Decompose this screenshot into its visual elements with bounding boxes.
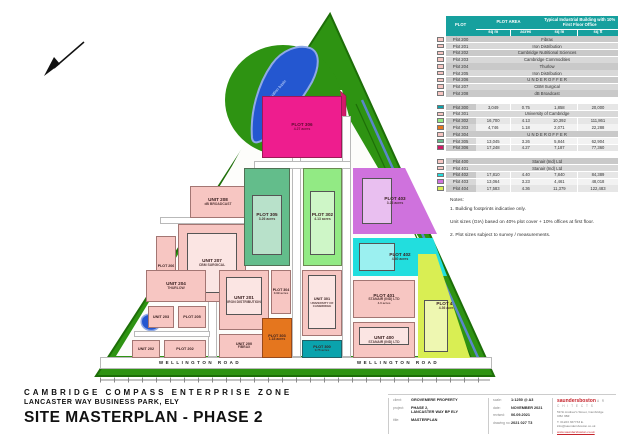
plot-sublabel: UNIVERSITY OF CAMBRIDGE [303, 302, 341, 309]
table-value-cell: 11,379 [541, 185, 577, 191]
swatch-color [437, 112, 444, 117]
table-merged-cell: Iron Distribution [476, 43, 618, 49]
table-plot-cell: Plot 205 [446, 70, 476, 76]
table-swatch [436, 50, 445, 56]
table-group-gap [436, 151, 618, 157]
plot-sublabel: 0.75 acres [315, 349, 330, 352]
table-value-cell: 4.36 [511, 185, 541, 191]
table-plot-cell: Plot 402 [446, 172, 476, 178]
table-plot-cell: Plot 203 [446, 57, 476, 63]
table-unit-sqm2: sq m [541, 30, 577, 36]
swatch-color [437, 186, 444, 191]
architect-website: www.saundersboston.co.uk [557, 430, 610, 434]
table-swatch [436, 36, 445, 42]
note-2: Unit sizes (GIA) based on 40% plot cover… [450, 218, 612, 227]
table-swatch [436, 118, 445, 124]
table-plot-cell: Plot 303 [446, 124, 476, 130]
building-footprint [252, 195, 282, 255]
plot-label: PLOT 206 [158, 264, 175, 268]
estate-road-5 [160, 217, 248, 224]
estate-road-6 [134, 331, 210, 337]
date-label: date: [493, 406, 511, 411]
notes-block: Notes: 1. Building footprints indicative… [450, 196, 612, 240]
table-plot-cell: Plot 202 [446, 50, 476, 56]
table-value-cell: 13,045 [476, 138, 510, 144]
table-swatch [436, 70, 445, 76]
table-value-cell: 17,810 [476, 172, 510, 178]
table-value-cell: 17,583 [476, 185, 510, 191]
table-value-cell: 17,248 [476, 145, 510, 151]
plot-sublabel: 1.18 acres [269, 338, 285, 342]
table-swatch-gutter [436, 16, 445, 36]
table-plot-cell: Plot 301 [446, 111, 476, 117]
table-value-cell: 2,071 [541, 124, 577, 130]
table-swatch [436, 138, 445, 144]
table-value-cell: 0.75 [511, 104, 541, 110]
wellington-road-label-west: WELLINGTON ROAD [150, 360, 250, 365]
business-park-subtitle: LANCASTER WAY BUSINESS PARK, ELY [24, 399, 292, 406]
table-value-cell: 4,461 [541, 179, 577, 185]
table-value-cell: 5,844 [541, 138, 577, 144]
plot-sublabel: 0.99 acres [274, 292, 289, 295]
plot-300: PLOT 300 0.75 acres [302, 340, 342, 358]
table-value-cell: 77,360 [578, 145, 618, 151]
table-swatch [436, 158, 445, 164]
swatch-color [437, 84, 444, 89]
note-1: 1. Building footprints indicative only. [450, 205, 612, 214]
architect-address: 59 St Andrew's Street, Cambridge CB2 3BZ [557, 410, 610, 419]
plot-schedule-table: PLOT PLOT AREA Typical Industrial Buildi… [436, 16, 618, 192]
table-value-cell: 4.13 [511, 118, 541, 124]
swatch-color [437, 118, 444, 123]
table-plot-cell: Plot 302 [446, 118, 476, 124]
date-value: NOVEMBER 2021 [511, 406, 542, 411]
swatch-color [437, 51, 444, 56]
table-value-cell: 122,483 [578, 185, 618, 191]
table-merged-cell: Iron Distribution [476, 70, 618, 76]
north-arrow-icon [44, 42, 84, 76]
plot-unit-203: UNIT 203 [148, 306, 174, 328]
table-plot-cell: Plot 204 [446, 63, 476, 69]
table-header-building: Typical Industrial Building with 10% Fir… [541, 16, 618, 29]
table-merged-cell: Cambridge Commodities [476, 57, 618, 63]
table-swatch [436, 57, 445, 63]
table-group-gap [436, 97, 618, 103]
plot-unit-202: UNIT 202 [132, 340, 160, 358]
swatch-color [437, 37, 444, 42]
table-header-area: PLOT AREA [476, 16, 541, 29]
table-plot-cell: Plot 206 [446, 77, 476, 83]
table-plot-cell: Plot 401 [446, 165, 476, 171]
client-value: GROVEMERE PROPERTY [411, 398, 458, 403]
plot-sublabel: THURLOW [167, 287, 184, 291]
table-value-cell: 3.26 [511, 138, 541, 144]
table-swatch [436, 165, 445, 171]
table-merged-cell: University of Cambridge [476, 111, 618, 117]
table-value-cell: 84,389 [578, 172, 618, 178]
plot-sublabel: 4.36 acres [439, 307, 455, 311]
enterprise-zone-title: CAMBRIDGE COMPASS ENTERPRISE ZONE [24, 388, 292, 397]
table-merged-cell: Fibrax [476, 36, 618, 42]
plot-sublabel: 3.26 acres [259, 218, 275, 222]
table-swatch [436, 179, 445, 185]
table-value-cell: 7,187 [541, 145, 577, 151]
plot-label: UNIT 202 [138, 347, 154, 351]
scale-label: scale: [493, 398, 511, 403]
swatch-color [437, 105, 444, 110]
plot-unit-204: UNIT 204 THURLOW [146, 270, 206, 302]
plot-sublabel: IRON DISTRIBUTION [227, 301, 261, 305]
table-plot-cell: Plot 207 [446, 84, 476, 90]
table-swatch [436, 63, 445, 69]
note-3: 2. Plot sizes subject to survey / measur… [450, 231, 612, 240]
plot-205: PLOT 205 [178, 306, 206, 328]
plot-unit-400: UNIT 400 STANAIR (IND) LTD [353, 322, 415, 358]
estate-road-3 [342, 116, 351, 357]
table-merged-cell: U N D E R O F F E R [476, 77, 618, 83]
swatch-color [437, 166, 444, 171]
swatch-color [437, 145, 444, 150]
sheet-value: MASTERPLAN [411, 418, 437, 423]
table-plot-cell: Plot 404 [446, 185, 476, 191]
table-swatch [436, 111, 445, 117]
sheet-main-title: SITE MASTERPLAN - PHASE 2 [24, 409, 292, 427]
table-merged-cell: Thurlow [476, 63, 618, 69]
swatch-color [437, 71, 444, 76]
table-plot-cell: Plot 304 [446, 131, 476, 137]
plot-label: UNIT 203 [153, 315, 169, 319]
architect-block: saundersboston A R C H I T E C T S 59 St… [552, 398, 614, 434]
project-line-1: PHASE 2, [411, 406, 428, 410]
swatch-color [437, 159, 444, 164]
plot-sublabel: 4.40 acres [392, 258, 408, 262]
table-swatch [436, 131, 445, 137]
plot-202: PLOT 202 [164, 340, 206, 358]
drawing-number-value: 2021 027 T3 [511, 421, 532, 426]
title-block-scale-col: scale: 1:1250 @ A3 date: NOVEMBER 2021 r… [488, 398, 552, 434]
plot-sublabel: dB BROADCAST [204, 203, 231, 207]
table-unit-sqm: sq m [476, 30, 510, 36]
table-value-cell: 48,018 [578, 179, 618, 185]
table-value-cell: 3,049 [476, 104, 510, 110]
scale-value: 1:1250 @ A3 [511, 398, 533, 403]
table-value-cell: 1.18 [511, 124, 541, 130]
sheet-label: title: [393, 418, 411, 423]
table-swatch [436, 104, 445, 110]
table-plot-cell: Plot 400 [446, 158, 476, 164]
wellington-road-label-east: WELLINGTON ROAD [348, 360, 448, 365]
plot-303: PLOT 303 1.18 acres [262, 318, 292, 358]
building-footprint [310, 191, 335, 255]
table-unit-acres: acres [511, 30, 541, 36]
plot-sublabel: FIBRAX [238, 346, 251, 350]
table-value-cell: 4.27 [511, 145, 541, 151]
table-merged-cell: Cambridge Nutritional Sciences [476, 50, 618, 56]
table-value-cell: 7,840 [541, 172, 577, 178]
architect-contact: T. 01223 367733 E. info@saundersboston.c… [557, 420, 610, 429]
plot-302: PLOT 302 4.13 acres [303, 168, 342, 266]
swatch-color [437, 91, 444, 96]
table-swatch [436, 43, 445, 49]
table-swatch [436, 77, 445, 83]
swatch-color [437, 78, 444, 83]
plot-label: PLOT 202 [176, 347, 194, 351]
swatch-color [437, 57, 444, 62]
table-plot-cell: Plot 403 [446, 179, 476, 185]
plot-305: PLOT 305 3.26 acres [244, 168, 290, 266]
table-swatch [436, 84, 445, 90]
table-value-cell: 3.23 [511, 179, 541, 185]
table-plot-cell: Plot 305 [446, 138, 476, 144]
table-swatch [436, 90, 445, 96]
project-line-2: LANCASTER WAY BP ELY [411, 410, 458, 414]
table-plot-cell: Plot 201 [446, 43, 476, 49]
plot-sublabel: 4.13 acres [314, 218, 330, 222]
table-value-cell: 13,064 [476, 179, 510, 185]
table-value-cell: 10,392 [541, 118, 577, 124]
table-plot-cell: Plot 208 [446, 90, 476, 96]
swatch-color [437, 64, 444, 69]
plot-304: PLOT 304 0.99 acres [271, 270, 291, 314]
table-value-cell: 4.40 [511, 172, 541, 178]
swatch-color [437, 139, 444, 144]
plot-unit-208: UNIT 208 dB BROADCAST [190, 186, 246, 218]
swatch-color [437, 173, 444, 178]
plot-sublabel: STANAIR (IND) LTD [368, 341, 399, 345]
plot-301: UNIT 301 UNIVERSITY OF CAMBRIDGE [302, 270, 342, 336]
masterplan-sheet: attenuation basin WELLINGTON ROAD WELLIN… [0, 0, 618, 437]
table-swatch [436, 172, 445, 178]
table-merged-cell: dB Broadcast [476, 90, 618, 96]
table-merged-cell: Stanair (Ind) Ltd [476, 158, 618, 164]
plot-sublabel: CBM SURGICAL [199, 264, 225, 268]
estate-road-2 [292, 146, 301, 357]
table-value-cell: 4,746 [476, 124, 510, 130]
project-value: PHASE 2, LANCASTER WAY BP ELY [411, 406, 458, 415]
project-label: project: [393, 406, 411, 415]
revised-label: revised: [493, 413, 511, 418]
table-value-cell: 1,858 [541, 104, 577, 110]
swatch-color [437, 132, 444, 137]
client-label: client: [393, 398, 411, 403]
table-merged-cell: U N D E R O F F E R [476, 131, 618, 137]
plot-label: PLOT 205 [183, 315, 201, 319]
table-value-cell: 16,700 [476, 118, 510, 124]
plot-sublabel: 3.23 acres [387, 202, 403, 206]
plot-306: PLOT 306 4.27 acres [262, 96, 342, 158]
notes-title: Notes: [450, 196, 612, 205]
revised-value: 06.09.2021 [511, 413, 530, 418]
drawing-number-label: drawing no: [493, 421, 511, 426]
table-unit-sqft: sq ft [578, 30, 618, 36]
table-swatch [436, 185, 445, 191]
table-value-cell: 62,904 [578, 138, 618, 144]
table-value-cell: 111,861 [578, 118, 618, 124]
table-swatch [436, 124, 445, 130]
plot-401: PLOT 401 STANAIR (IND) LTD 4.0 acres [353, 280, 415, 318]
table-header-plot: PLOT [446, 16, 476, 36]
table-merged-cell: Stanair (Ind) Ltd [476, 165, 618, 171]
title-block-right: client: GROVEMERE PROPERTY project: PHAS… [388, 394, 616, 434]
title-block-project-col: client: GROVEMERE PROPERTY project: PHAS… [388, 398, 488, 434]
table-value-cell: 22,288 [578, 124, 618, 130]
plot-sublabel2: 4.0 acres [378, 302, 391, 305]
swatch-color [437, 44, 444, 49]
table-value-cell: 20,000 [578, 104, 618, 110]
swatch-color [437, 179, 444, 184]
title-block-left: CAMBRIDGE COMPASS ENTERPRISE ZONE LANCAS… [24, 388, 292, 427]
plot-sublabel: 4.27 acres [294, 128, 310, 132]
table-swatch [436, 145, 445, 151]
table-merged-cell: CBM Surgical [476, 84, 618, 90]
table-plot-cell: Plot 300 [446, 104, 476, 110]
table-plot-cell: Plot 200 [446, 36, 476, 42]
swatch-color [437, 125, 444, 130]
table-plot-cell: Plot 306 [446, 145, 476, 151]
